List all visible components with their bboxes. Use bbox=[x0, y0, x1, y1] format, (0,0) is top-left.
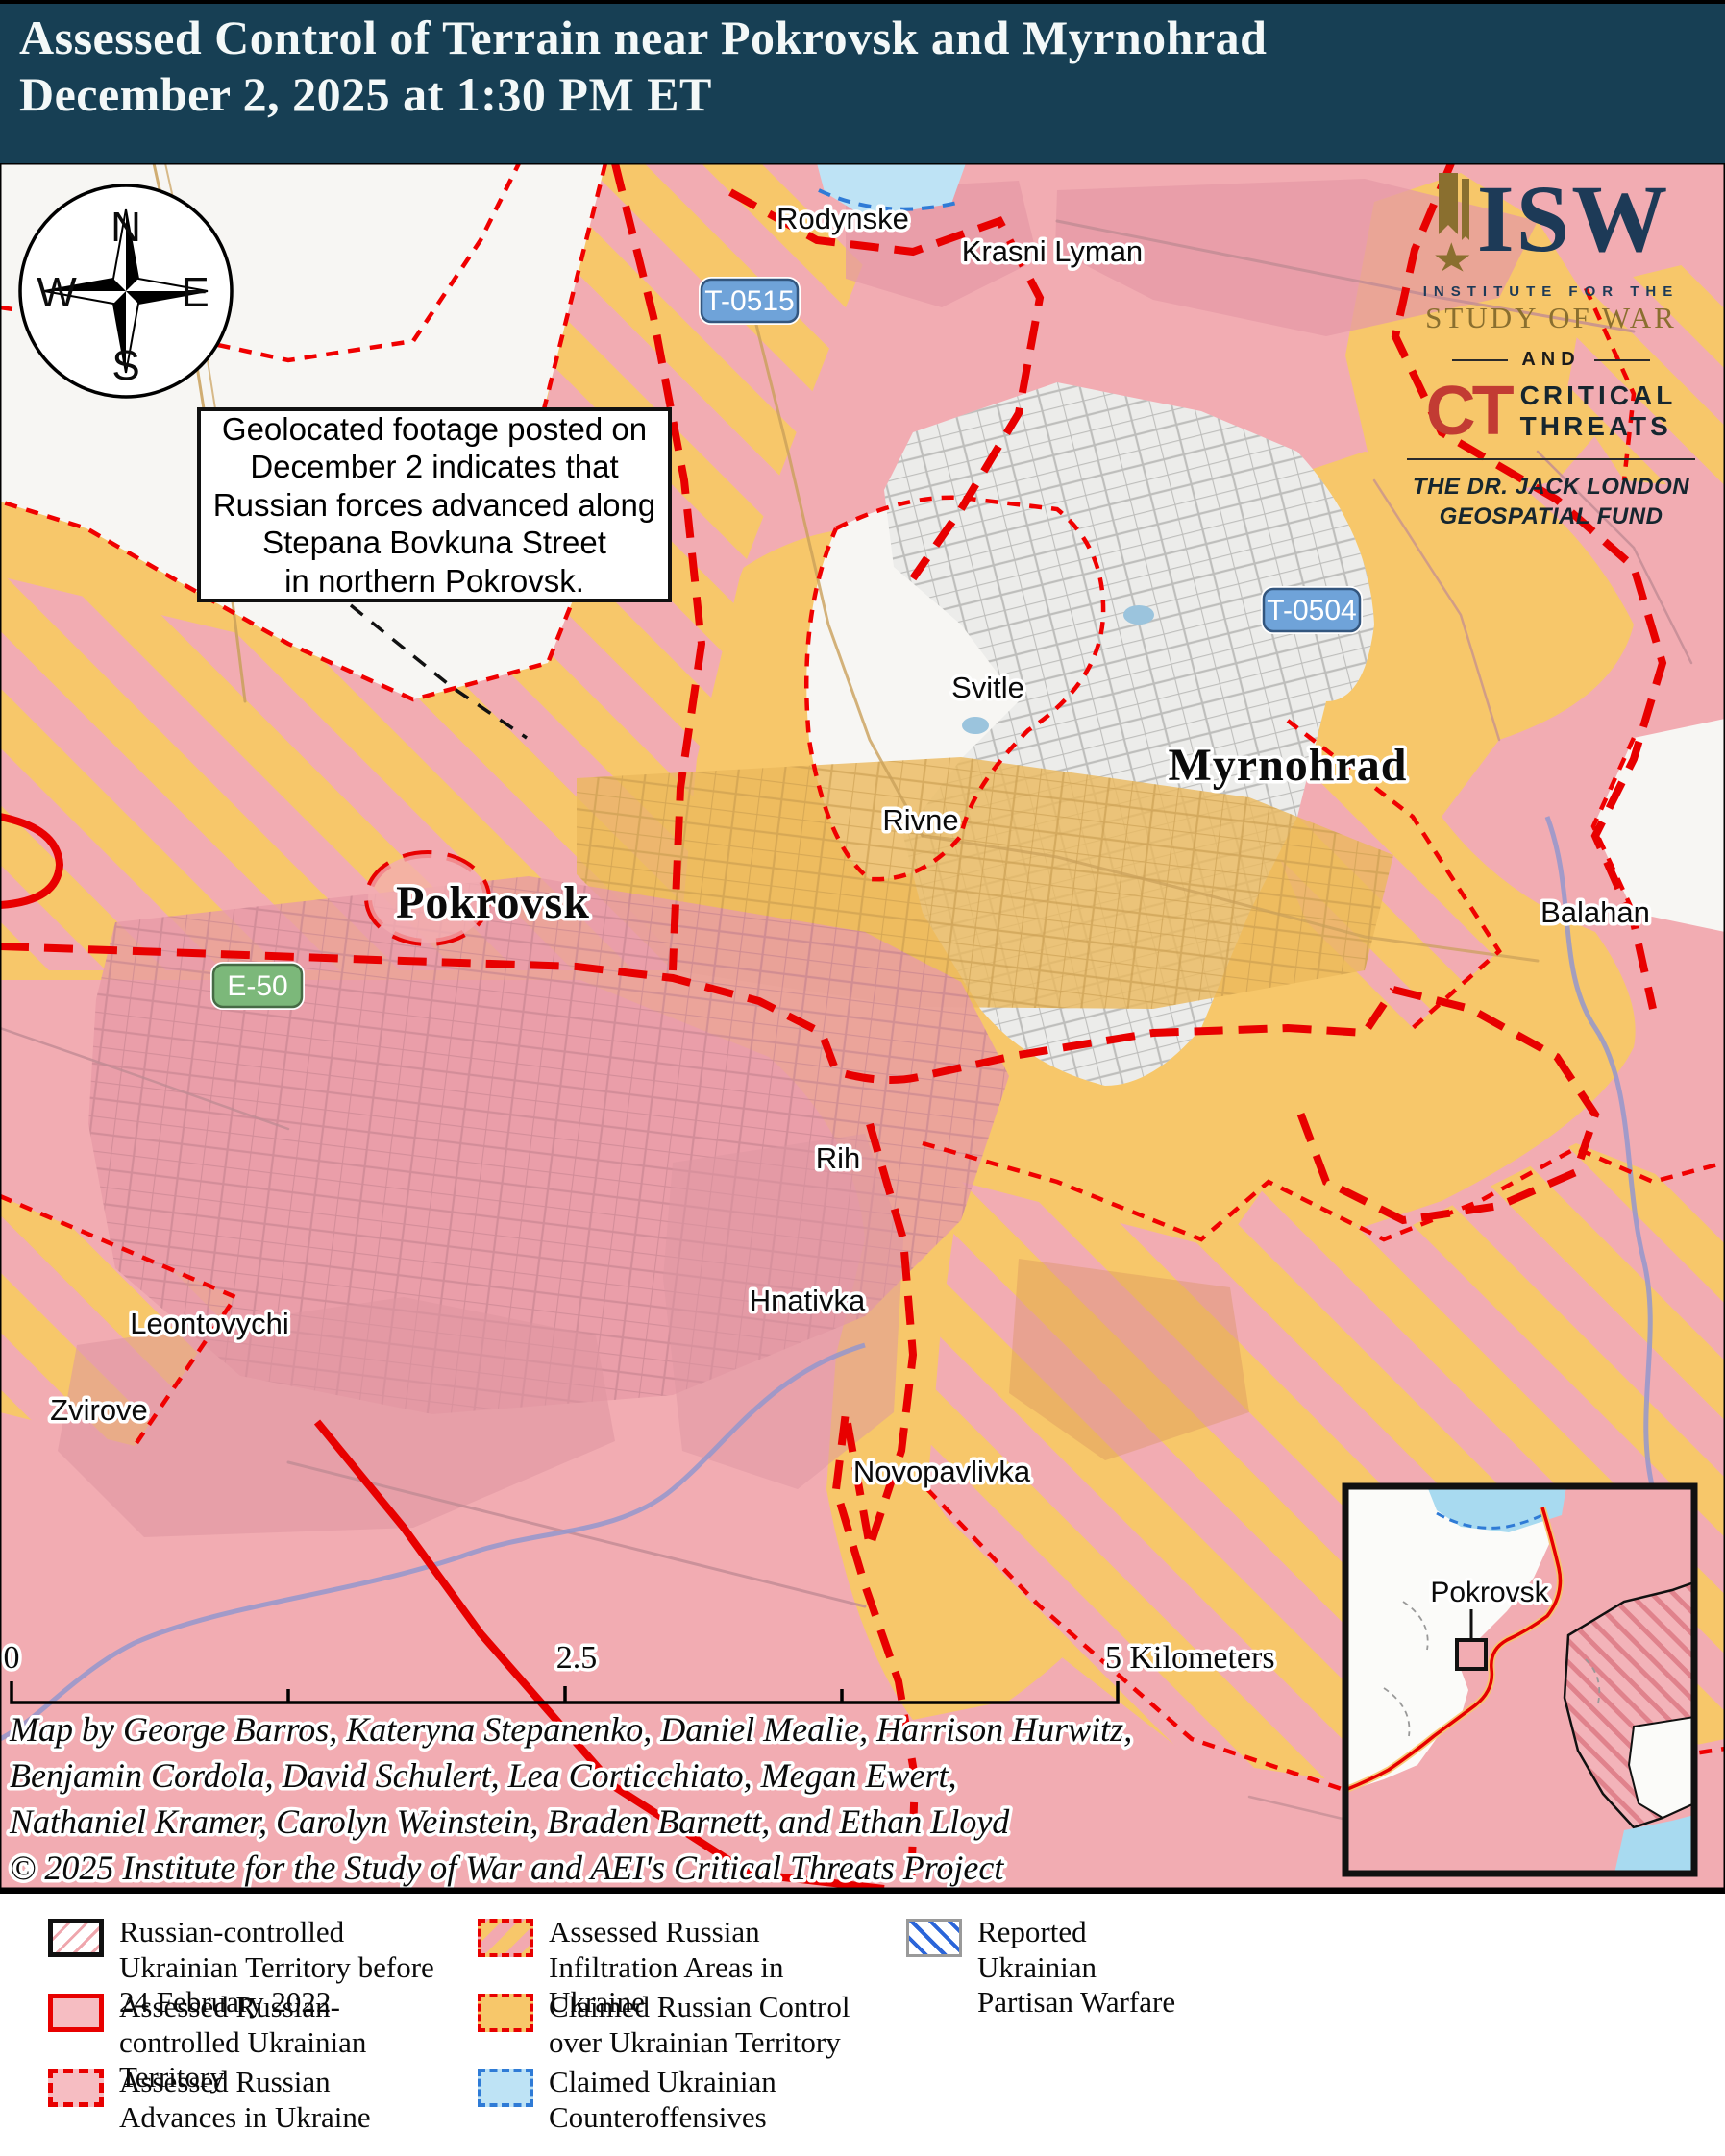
legend-item-partisan: Reported Ukrainian Partisan Warfare bbox=[906, 1915, 1195, 2021]
callout-line: Geolocated footage posted on bbox=[222, 410, 647, 449]
credit-line: Map by George Barros, Kateryna Stepanenk… bbox=[9, 1710, 1132, 1749]
city-label-myrnohrad: Myrnohrad bbox=[1169, 740, 1408, 791]
legend-item-advances: Assessed Russian Advances in Ukraine bbox=[48, 2065, 447, 2135]
scale-mid: 2.5 bbox=[556, 1640, 598, 1676]
road-shield-t0515: T-0515 bbox=[702, 280, 798, 322]
compass-rose: N E S W bbox=[20, 185, 232, 397]
map-timestamp: December 2, 2025 at 1:30 PM ET bbox=[19, 66, 1725, 123]
divider-line bbox=[1407, 458, 1695, 460]
callout-line: in northern Pokrovsk. bbox=[284, 562, 584, 600]
town-label-rih: Rih bbox=[816, 1141, 861, 1175]
critical-threats-logo: CT bbox=[1426, 380, 1511, 443]
credit-line: Nathaniel Kramer, Carolyn Weinstein, Bra… bbox=[9, 1802, 1010, 1841]
isw-institute-text: INSTITUTE FOR THE bbox=[1382, 283, 1720, 300]
swatch-controlled bbox=[48, 1994, 104, 2032]
inset-locator-map: Pokrovsk bbox=[1345, 1486, 1694, 1874]
divider-line bbox=[1452, 359, 1508, 361]
legend-label: Reported Ukrainian Partisan Warfare bbox=[977, 1915, 1195, 2021]
road-shield-label: E-50 bbox=[227, 970, 287, 1002]
town-label-zvirove: Zvirove bbox=[50, 1393, 148, 1427]
swatch-partisan bbox=[906, 1919, 962, 1957]
swatch-pre2022 bbox=[48, 1919, 104, 1957]
fund-line2: GEOSPATIAL FUND bbox=[1382, 502, 1720, 531]
callout-line: December 2 indicates that bbox=[250, 448, 618, 486]
compass-e: E bbox=[181, 269, 209, 316]
compass-n: N bbox=[111, 204, 141, 251]
town-label-rivne: Rivne bbox=[882, 803, 958, 837]
isw-study-of-war-text: STUDY OF WAR bbox=[1382, 301, 1720, 335]
legend-label: Claimed Russian Control over Ukrainian T… bbox=[549, 1990, 862, 2060]
credit-line: © 2025 Institute for the Study of War an… bbox=[10, 1849, 1004, 1887]
swatch-counteroffensive bbox=[478, 2069, 533, 2107]
compass-s: S bbox=[111, 342, 139, 389]
town-label-hnativka: Hnativka bbox=[750, 1284, 866, 1317]
inset-pokrovsk-label: Pokrovsk bbox=[1430, 1577, 1549, 1608]
legend-item-claimed: Claimed Russian Control over Ukrainian T… bbox=[478, 1990, 862, 2060]
compass-w: W bbox=[37, 269, 77, 316]
legend-label: Assessed Russian Advances in Ukraine bbox=[119, 2065, 447, 2135]
ct-word-critical: CRITICAL bbox=[1520, 380, 1677, 411]
city-label-pokrovsk: Pokrovsk bbox=[396, 877, 590, 928]
geolocated-footage-callout: Geolocated footage posted on December 2 … bbox=[197, 407, 672, 602]
town-label-krasni-lyman: Krasni Lyman bbox=[962, 234, 1143, 268]
swatch-infiltration bbox=[478, 1919, 533, 1957]
ct-word-threats: THREATS bbox=[1520, 411, 1677, 442]
road-shield-label: T-0504 bbox=[1267, 595, 1356, 626]
legend-item-counteroffensive: Claimed Ukrainian Counteroffensives bbox=[478, 2065, 862, 2135]
road-shield-t0504: T-0504 bbox=[1264, 589, 1360, 631]
scale-end: 5 Kilometers bbox=[1105, 1640, 1275, 1676]
town-label-leontovychi: Leontovychi bbox=[130, 1307, 288, 1340]
map-title-bar: Assessed Control of Terrain near Pokrovs… bbox=[0, 0, 1725, 163]
isw-logo: ISW bbox=[1477, 173, 1670, 264]
isw-ribbon-icon bbox=[1433, 173, 1475, 282]
legend-label: Claimed Ukrainian Counteroffensives bbox=[549, 2065, 862, 2135]
and-label: AND bbox=[1521, 349, 1580, 371]
town-label-rodynske: Rodynske bbox=[776, 202, 909, 235]
credit-line: Benjamin Cordola, David Schulert, Lea Co… bbox=[10, 1756, 957, 1795]
swatch-advances bbox=[48, 2069, 104, 2107]
town-label-balahan: Balahan bbox=[1540, 895, 1650, 929]
isw-map-report: { "header": { "line1": "Assessed Control… bbox=[0, 0, 1725, 2156]
callout-line: Russian forces advanced along bbox=[213, 486, 655, 525]
fund-line1: THE DR. JACK LONDON bbox=[1382, 472, 1720, 502]
callout-line: Stepana Bovkuna Street bbox=[262, 524, 606, 562]
road-shield-label: T-0515 bbox=[704, 285, 794, 317]
branding-block: ISW INSTITUTE FOR THE STUDY OF WAR AND C… bbox=[1382, 173, 1720, 531]
town-label-svitle: Svitle bbox=[951, 671, 1024, 704]
scale-start: 0 bbox=[4, 1640, 20, 1676]
town-label-novopavlivka: Novopavlivka bbox=[853, 1455, 1031, 1488]
divider-line bbox=[1594, 359, 1650, 361]
road-shield-e50: E-50 bbox=[213, 965, 302, 1007]
map-title: Assessed Control of Terrain near Pokrovs… bbox=[19, 10, 1725, 66]
map-legend: Russian-controlled Ukrainian Territory b… bbox=[0, 1889, 1725, 2156]
swatch-claimed bbox=[478, 1994, 533, 2032]
